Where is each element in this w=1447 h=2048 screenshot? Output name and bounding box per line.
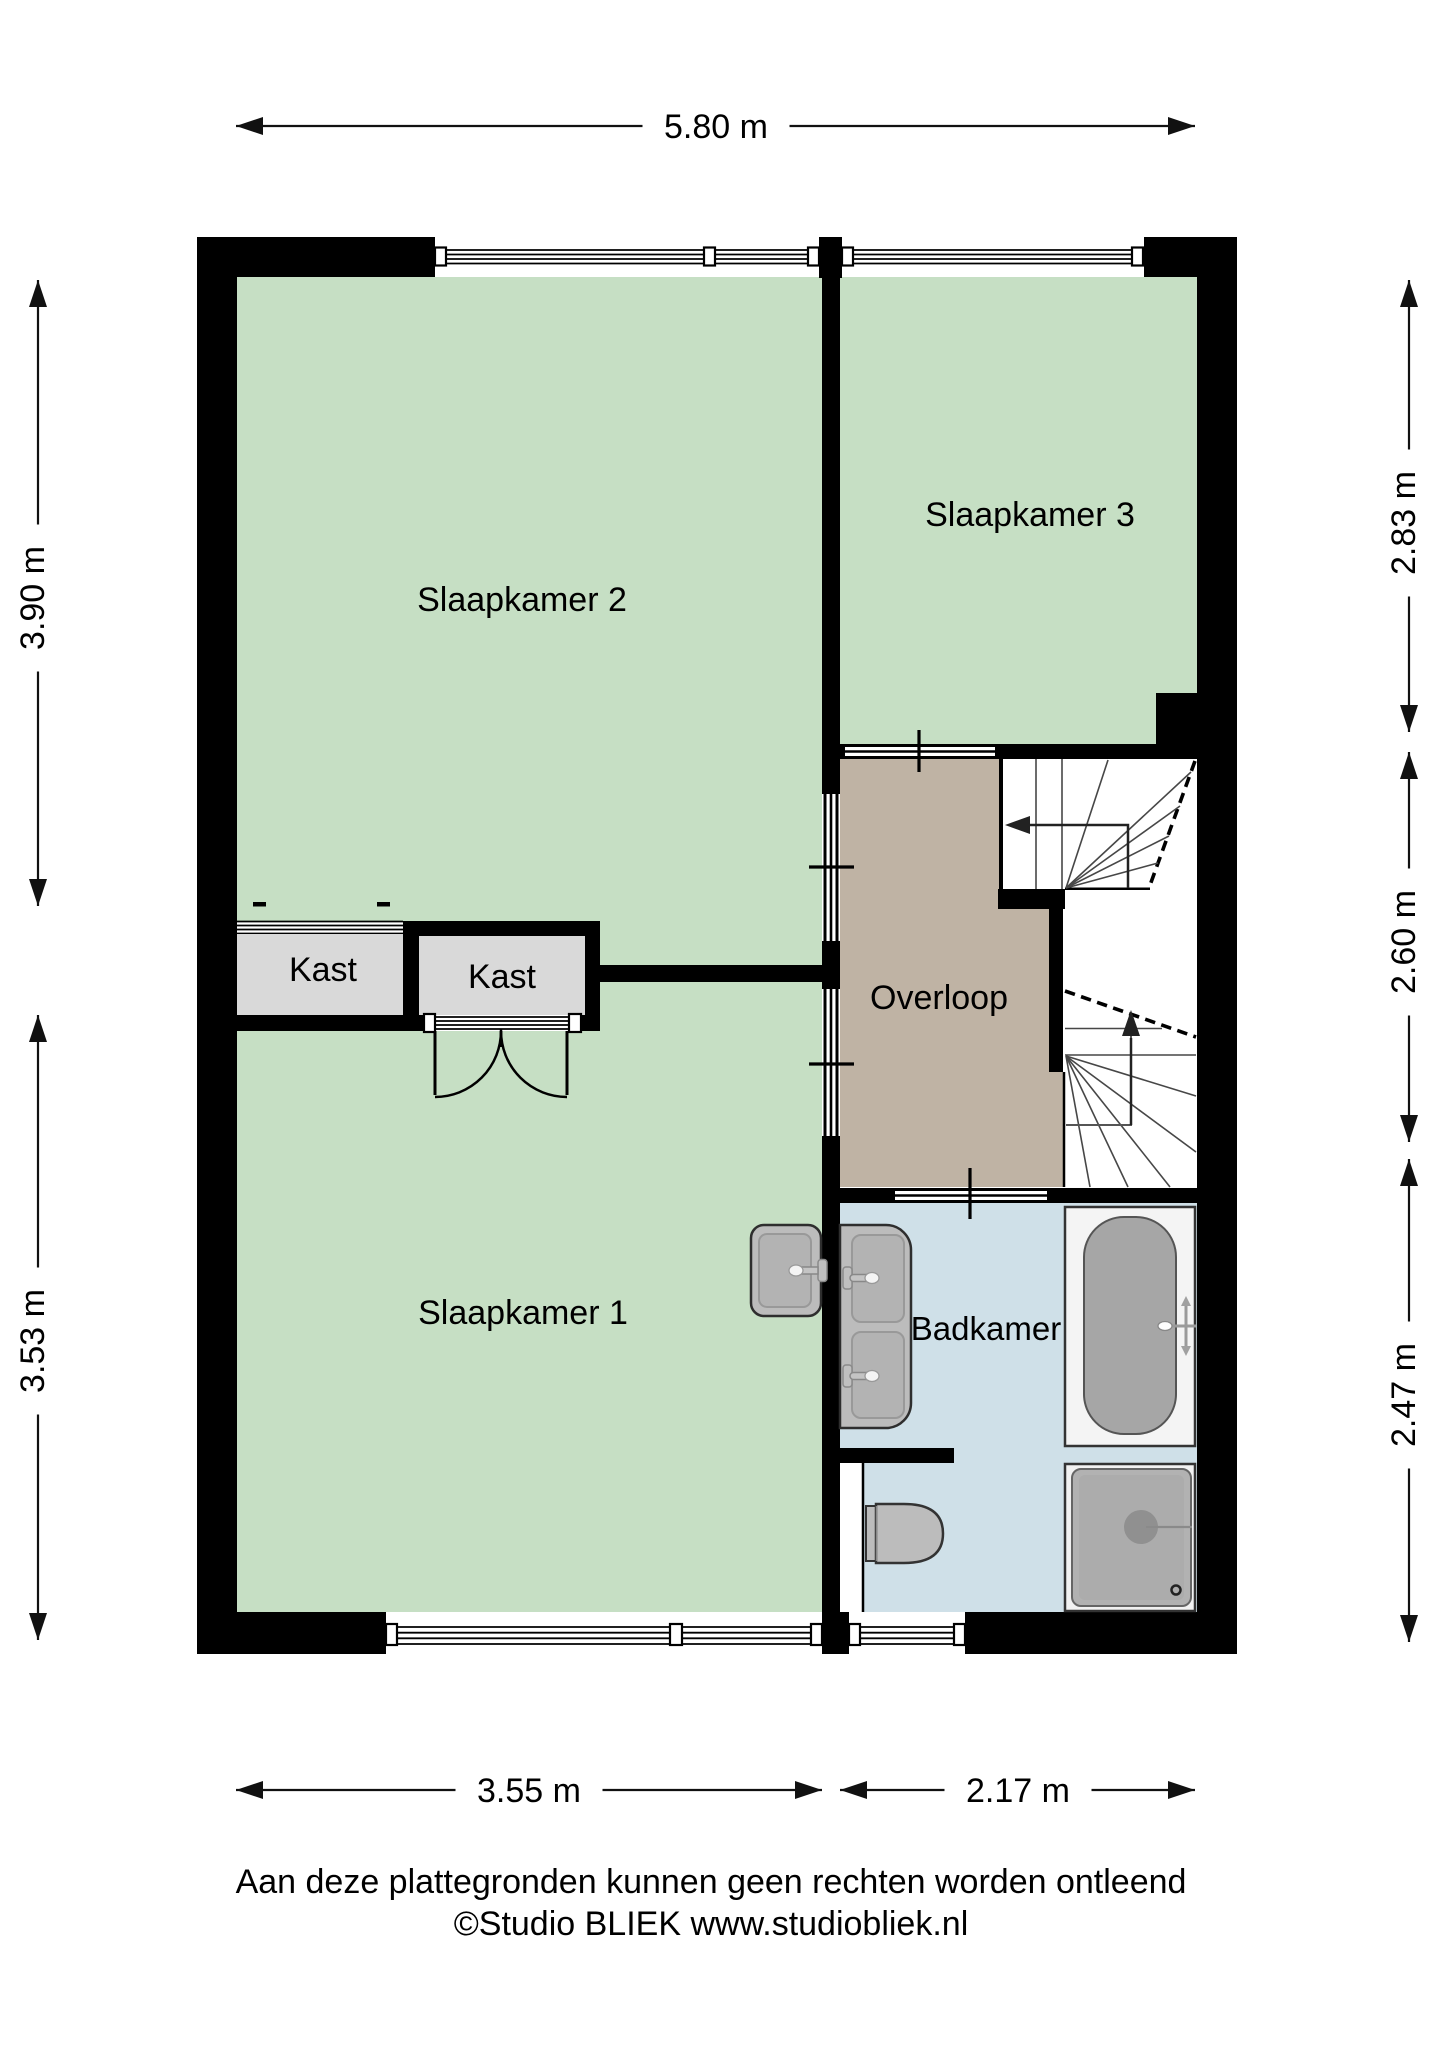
svg-text:Aan deze plattegronden kunnen: Aan deze plattegronden kunnen geen recht… [236,1863,1187,1901]
svg-text:Badkamer: Badkamer [911,1310,1061,1347]
svg-text:2.47 m: 2.47 m [1385,1343,1423,1447]
svg-text:Slaapkamer 2: Slaapkamer 2 [417,581,627,619]
svg-text:©Studio BLIEK www.studiobliek.: ©Studio BLIEK www.studiobliek.nl [454,1905,969,1943]
svg-text:5.80 m: 5.80 m [664,108,768,146]
svg-text:3.90 m: 3.90 m [14,546,52,650]
svg-text:3.53 m: 3.53 m [14,1289,52,1393]
svg-text:2.83 m: 2.83 m [1385,471,1423,575]
svg-text:Slaapkamer 1: Slaapkamer 1 [418,1294,628,1332]
svg-text:Overloop: Overloop [870,979,1008,1017]
svg-text:2.60 m: 2.60 m [1385,890,1423,994]
svg-text:2.17 m: 2.17 m [966,1772,1070,1810]
svg-text:Kast: Kast [468,958,537,996]
svg-text:Kast: Kast [289,951,358,989]
svg-text:Slaapkamer 3: Slaapkamer 3 [925,496,1135,534]
svg-text:3.55 m: 3.55 m [477,1772,581,1810]
